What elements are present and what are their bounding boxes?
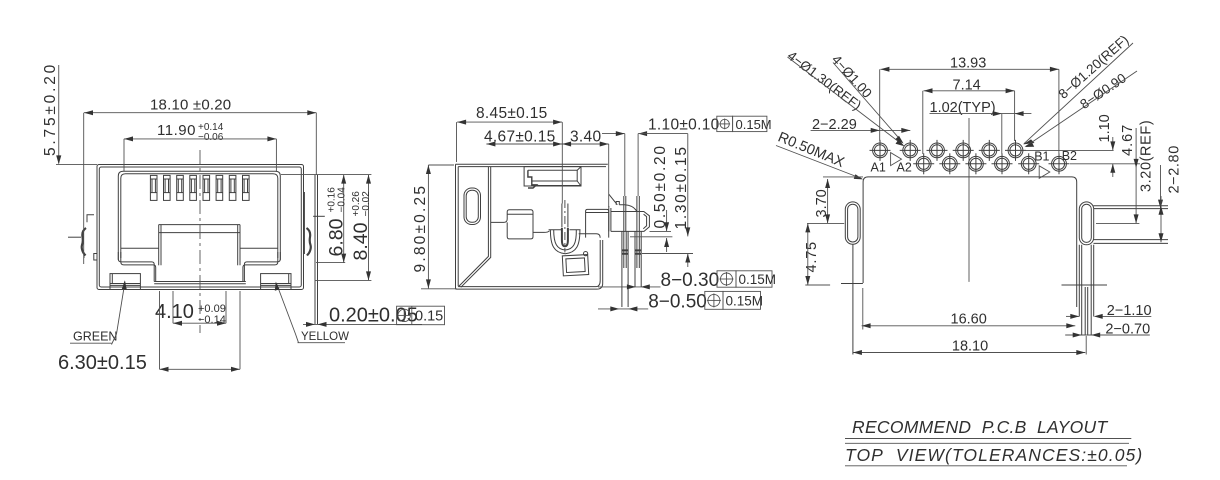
svg-text:4.67: 4.67 <box>1120 124 1136 156</box>
svg-text:3.40: 3.40 <box>570 129 601 146</box>
svg-text:18.10 ±0.20: 18.10 ±0.20 <box>150 97 231 114</box>
svg-text:0.15: 0.15 <box>415 309 443 325</box>
svg-text:A2: A2 <box>897 161 912 175</box>
svg-text:YELLOW: YELLOW <box>301 331 349 343</box>
svg-text:TOP VIEW(TOLERANCES:±0.05): TOP VIEW(TOLERANCES:±0.05) <box>845 445 1143 465</box>
svg-text:8.40: 8.40 <box>350 222 372 260</box>
svg-text:9.80±0.25: 9.80±0.25 <box>412 184 429 273</box>
svg-text:B1: B1 <box>1034 150 1049 164</box>
svg-text:8−0.50: 8−0.50 <box>648 292 707 313</box>
svg-text:B2: B2 <box>1062 149 1077 163</box>
svg-text:4.10: 4.10 <box>155 301 194 323</box>
svg-text:5.75±0.20: 5.75±0.20 <box>42 62 59 156</box>
svg-text:3.20(REF): 3.20(REF) <box>1139 120 1155 192</box>
svg-text:8.45±0.15: 8.45±0.15 <box>476 105 548 122</box>
svg-text:1.10: 1.10 <box>1097 114 1113 142</box>
svg-text:−0.02: −0.02 <box>361 191 372 217</box>
svg-text:RECOMMEND P.C.B LAYOUT: RECOMMEND P.C.B LAYOUT <box>852 417 1108 437</box>
svg-text:A1: A1 <box>871 160 886 174</box>
svg-text:6.30±0.15: 6.30±0.15 <box>58 352 147 374</box>
svg-text:1.10±0.10: 1.10±0.10 <box>648 117 720 134</box>
svg-text:6.80: 6.80 <box>326 218 348 256</box>
svg-text:8−0.30: 8−0.30 <box>661 270 720 291</box>
svg-text:−0.06: −0.06 <box>198 132 224 143</box>
svg-text:GREEN: GREEN <box>73 330 117 344</box>
svg-text:−0.04: −0.04 <box>337 187 348 213</box>
svg-text:16.60: 16.60 <box>951 312 987 328</box>
svg-text:0.15M: 0.15M <box>736 117 772 132</box>
svg-text:4.75: 4.75 <box>804 241 820 272</box>
svg-text:2−2.80: 2−2.80 <box>1167 145 1183 193</box>
svg-text:0.15M: 0.15M <box>726 293 764 308</box>
svg-text:11.90: 11.90 <box>157 122 196 139</box>
svg-text:0.15M: 0.15M <box>739 272 777 287</box>
